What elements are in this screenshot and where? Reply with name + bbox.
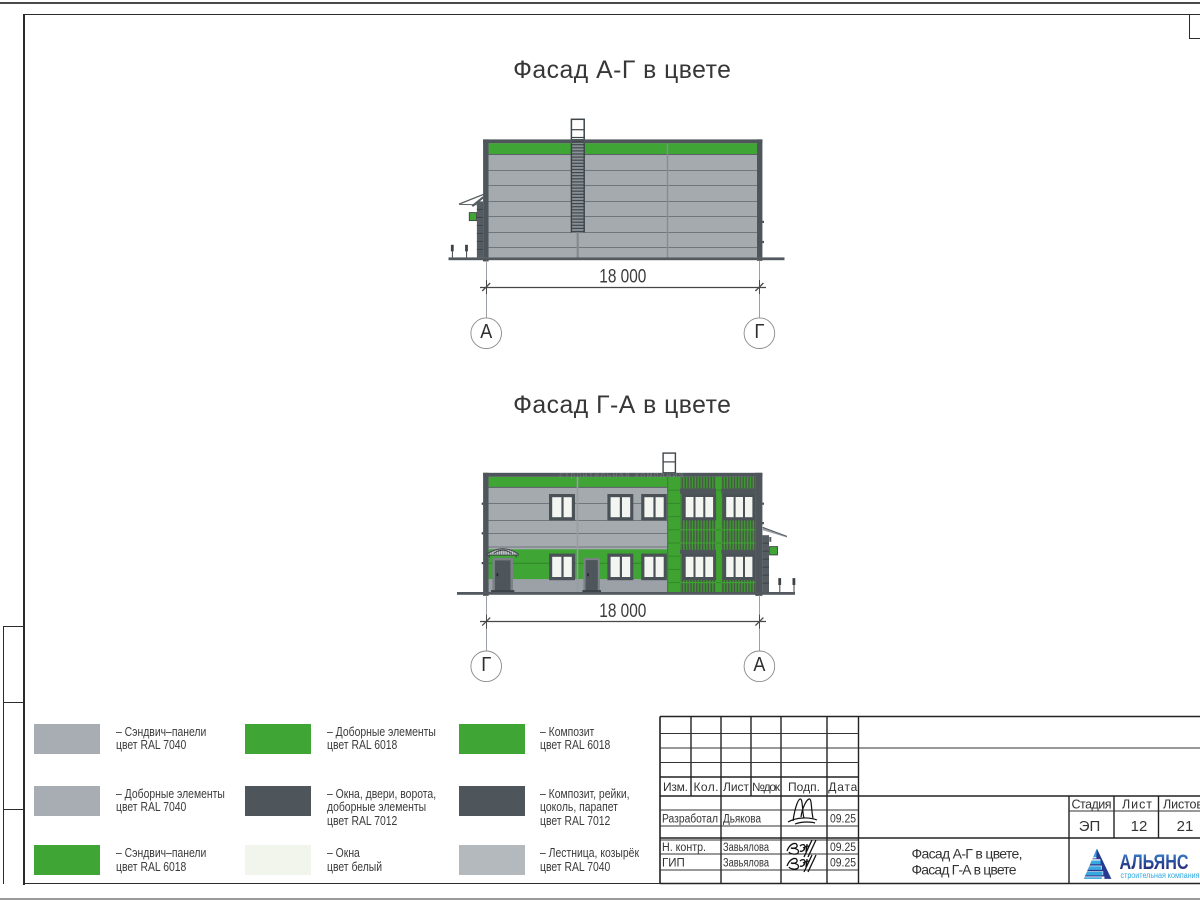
svg-text:А: А bbox=[480, 320, 492, 343]
svg-text:Лист: Лист bbox=[723, 780, 750, 794]
svg-text:12: 12 bbox=[1131, 818, 1148, 835]
svg-text:ЭП: ЭП bbox=[1079, 818, 1101, 835]
svg-text:18 000: 18 000 bbox=[599, 266, 646, 288]
svg-text:ГИП: ГИП bbox=[662, 858, 685, 870]
svg-text:21: 21 bbox=[1177, 818, 1194, 835]
svg-text:Кол.: Кол. bbox=[694, 780, 719, 794]
svg-text:09.25: 09.25 bbox=[830, 858, 856, 870]
svg-text:Подп.: Подп. bbox=[788, 780, 820, 794]
svg-text:Фасад Г-А в цвете: Фасад Г-А в цвете bbox=[912, 862, 1017, 878]
svg-text:Лист: Лист bbox=[1122, 798, 1152, 812]
svg-text:Разработал: Разработал bbox=[662, 814, 718, 826]
svg-text:Завьялова: Завьялова bbox=[723, 858, 769, 870]
svg-text:Стадия: Стадия bbox=[1072, 798, 1112, 812]
svg-text:строительная компания: строительная компания bbox=[559, 470, 685, 480]
svg-text:Г: Г bbox=[481, 653, 491, 676]
svg-text:Г: Г bbox=[754, 320, 764, 343]
svg-text:09.25: 09.25 bbox=[830, 814, 856, 826]
svg-text:18 000: 18 000 bbox=[599, 600, 646, 622]
svg-text:Н. контр.: Н. контр. bbox=[662, 842, 706, 854]
svg-text:Изм.: Изм. bbox=[663, 780, 688, 794]
svg-text:№док: №док bbox=[752, 780, 781, 794]
svg-text:09.25: 09.25 bbox=[830, 842, 856, 854]
svg-text:строительная компания: строительная компания bbox=[1121, 871, 1200, 880]
svg-text:Дьякова: Дьякова bbox=[723, 814, 762, 826]
svg-text:Листов: Листов bbox=[1163, 798, 1200, 812]
svg-text:Дата: Дата bbox=[828, 780, 857, 794]
svg-text:Завьялова: Завьялова bbox=[723, 842, 769, 854]
svg-text:Фасад А-Г в цвете,: Фасад А-Г в цвете, bbox=[912, 846, 1023, 862]
svg-text:А: А bbox=[753, 653, 765, 676]
